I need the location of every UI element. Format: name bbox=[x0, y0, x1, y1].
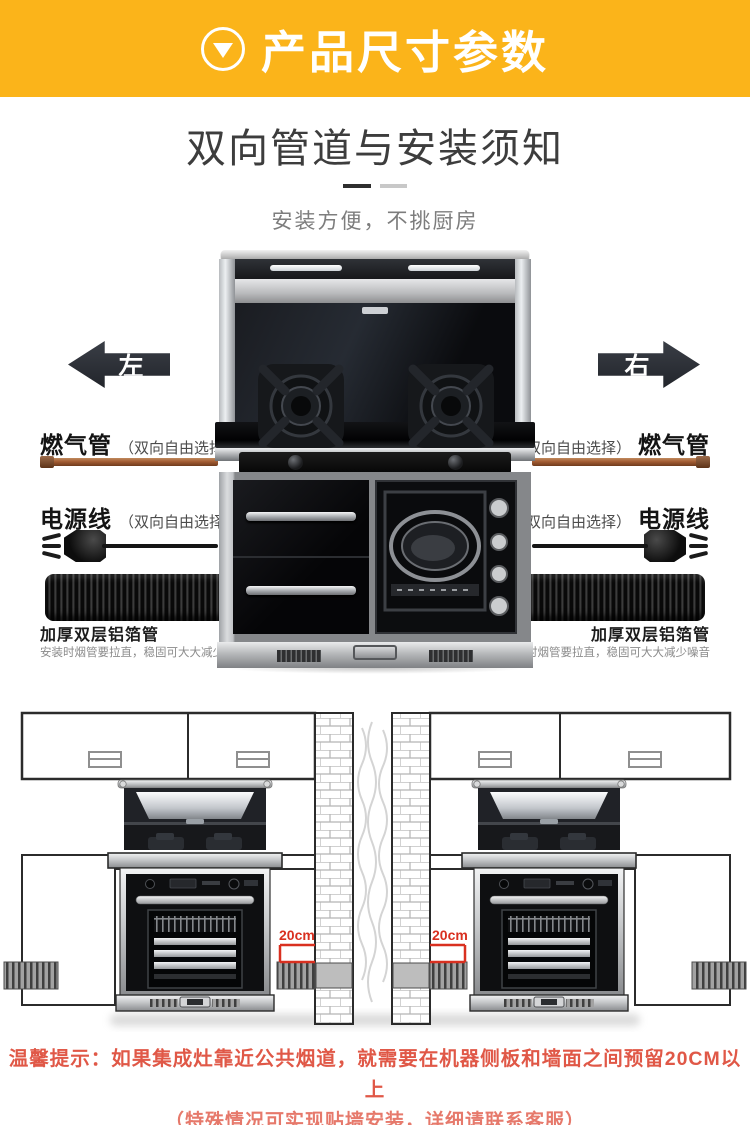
gas-pipe-label-left: 燃气管 （双向自由选择） bbox=[40, 426, 239, 460]
hood-screen-clip bbox=[362, 307, 388, 314]
banner-title: 产品尺寸参数 bbox=[261, 16, 549, 81]
power-plug-icon-left bbox=[42, 526, 106, 566]
control-strip bbox=[239, 452, 511, 474]
diagram-stove-left bbox=[108, 780, 282, 1011]
base-latch bbox=[353, 645, 397, 660]
integrated-stove-photo bbox=[215, 250, 535, 670]
section-banner: 产品尺寸参数 bbox=[0, 0, 750, 97]
gas-pipe-fitting-right bbox=[696, 456, 710, 468]
chimney-smoke bbox=[358, 722, 387, 1002]
right-direction-arrow-icon: 右 bbox=[598, 341, 700, 388]
oven-knobs bbox=[490, 499, 508, 615]
title-divider bbox=[0, 184, 750, 188]
copper-gas-pipe-left bbox=[40, 458, 218, 466]
burner-right bbox=[408, 364, 494, 448]
base-vent-right bbox=[429, 650, 473, 662]
foil-title-right: 加厚双层铝箔管 bbox=[591, 621, 710, 645]
upper-cabinets-right bbox=[430, 713, 730, 779]
gas-title-left: 燃气管 bbox=[40, 426, 112, 460]
dash-dark bbox=[343, 184, 371, 188]
left-direction-arrow-icon: 左 bbox=[68, 341, 170, 388]
drawer-handle-top bbox=[246, 512, 356, 521]
product-dimension-page: 产品尺寸参数 双向管道与安装须知 安装方便，不挑厨房 左 右 燃气管 （双向自由… bbox=[0, 0, 750, 1125]
control-knob-left bbox=[288, 455, 303, 470]
power-cord-left bbox=[102, 544, 218, 548]
oven-window bbox=[375, 480, 517, 634]
power-plug-icon-right bbox=[644, 526, 708, 566]
gas-burners bbox=[215, 346, 535, 456]
upper-cabinets-left bbox=[22, 713, 315, 779]
drawer-handle-bottom bbox=[246, 586, 356, 595]
foil-duct-right bbox=[522, 574, 705, 621]
circle-down-triangle-icon bbox=[201, 27, 245, 71]
left-arrow-label: 左 bbox=[118, 347, 143, 383]
warning-note: 温馨提示：如果集成灶靠近公共烟道，就需要在机器侧板和墙面之间预留20CM以上 （… bbox=[0, 1044, 750, 1125]
gas-pipe-label-right: （双向自由选择） 燃气管 bbox=[511, 426, 710, 460]
gas-pipe-fitting-left bbox=[40, 456, 54, 468]
base-vent-left bbox=[277, 650, 321, 662]
gas-title-right: 燃气管 bbox=[638, 426, 710, 460]
right-arrow-label: 右 bbox=[624, 347, 649, 383]
warning-line2: （特殊情况可实现贴墙安装，详细请联系客服） bbox=[0, 1106, 750, 1125]
clearance-label-left: 20cm bbox=[279, 927, 315, 943]
dash-light bbox=[380, 184, 407, 188]
clearance-marker-right: 20cm bbox=[430, 927, 468, 962]
hood-brushed-band bbox=[235, 279, 515, 303]
section-subtitle: 安装方便，不挑厨房 bbox=[0, 205, 750, 235]
warning-line1: 温馨提示：如果集成灶靠近公共烟道，就需要在机器侧板和墙面之间预留20CM以上 bbox=[0, 1044, 750, 1106]
hood-light-left bbox=[270, 265, 342, 271]
hood-light-right bbox=[408, 265, 480, 271]
installation-diagram: 20cm 20cm bbox=[0, 702, 750, 1050]
section-title: 双向管道与安装须知 bbox=[0, 116, 750, 174]
foil-duct-left bbox=[45, 574, 228, 621]
clearance-marker-left: 20cm bbox=[279, 927, 315, 962]
clearance-label-right: 20cm bbox=[432, 927, 468, 943]
power-cord-right bbox=[532, 544, 648, 548]
burner-left bbox=[258, 364, 344, 448]
foil-title-left: 加厚双层铝箔管 bbox=[40, 621, 159, 645]
floor-shadow bbox=[110, 1014, 640, 1026]
drawer-divider bbox=[233, 556, 369, 558]
copper-gas-pipe-right bbox=[532, 458, 710, 466]
diagram-stove-right bbox=[462, 780, 636, 1011]
control-knob-right bbox=[448, 455, 463, 470]
